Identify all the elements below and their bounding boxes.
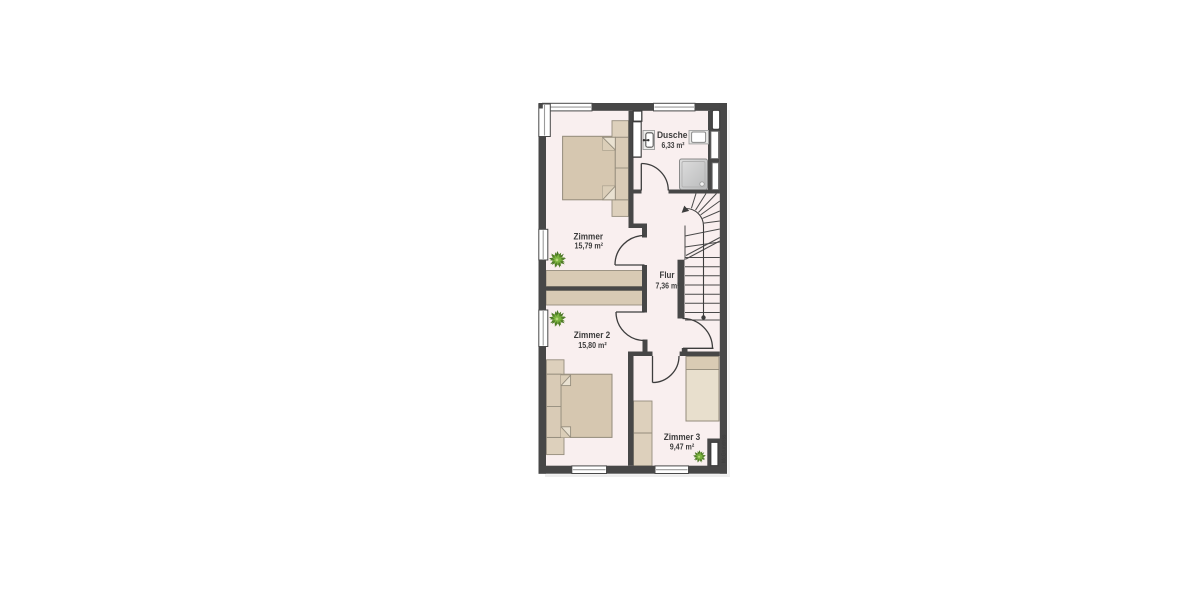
svg-text:15,79 m²: 15,79 m² (575, 241, 604, 250)
svg-text:Flur: Flur (660, 270, 675, 281)
svg-text:Zimmer 2: Zimmer 2 (574, 330, 611, 341)
svg-text:15,80 m²: 15,80 m² (578, 341, 607, 350)
svg-text:McGrundriss: McGrundriss (722, 434, 728, 463)
svg-text:7,36 m²: 7,36 m² (656, 281, 680, 290)
svg-text:9,47 m²: 9,47 m² (670, 442, 695, 451)
svg-text:6,33 m²: 6,33 m² (662, 141, 685, 150)
svg-text:Dusche: Dusche (657, 130, 688, 141)
svg-text:Zimmer 3: Zimmer 3 (664, 432, 701, 443)
